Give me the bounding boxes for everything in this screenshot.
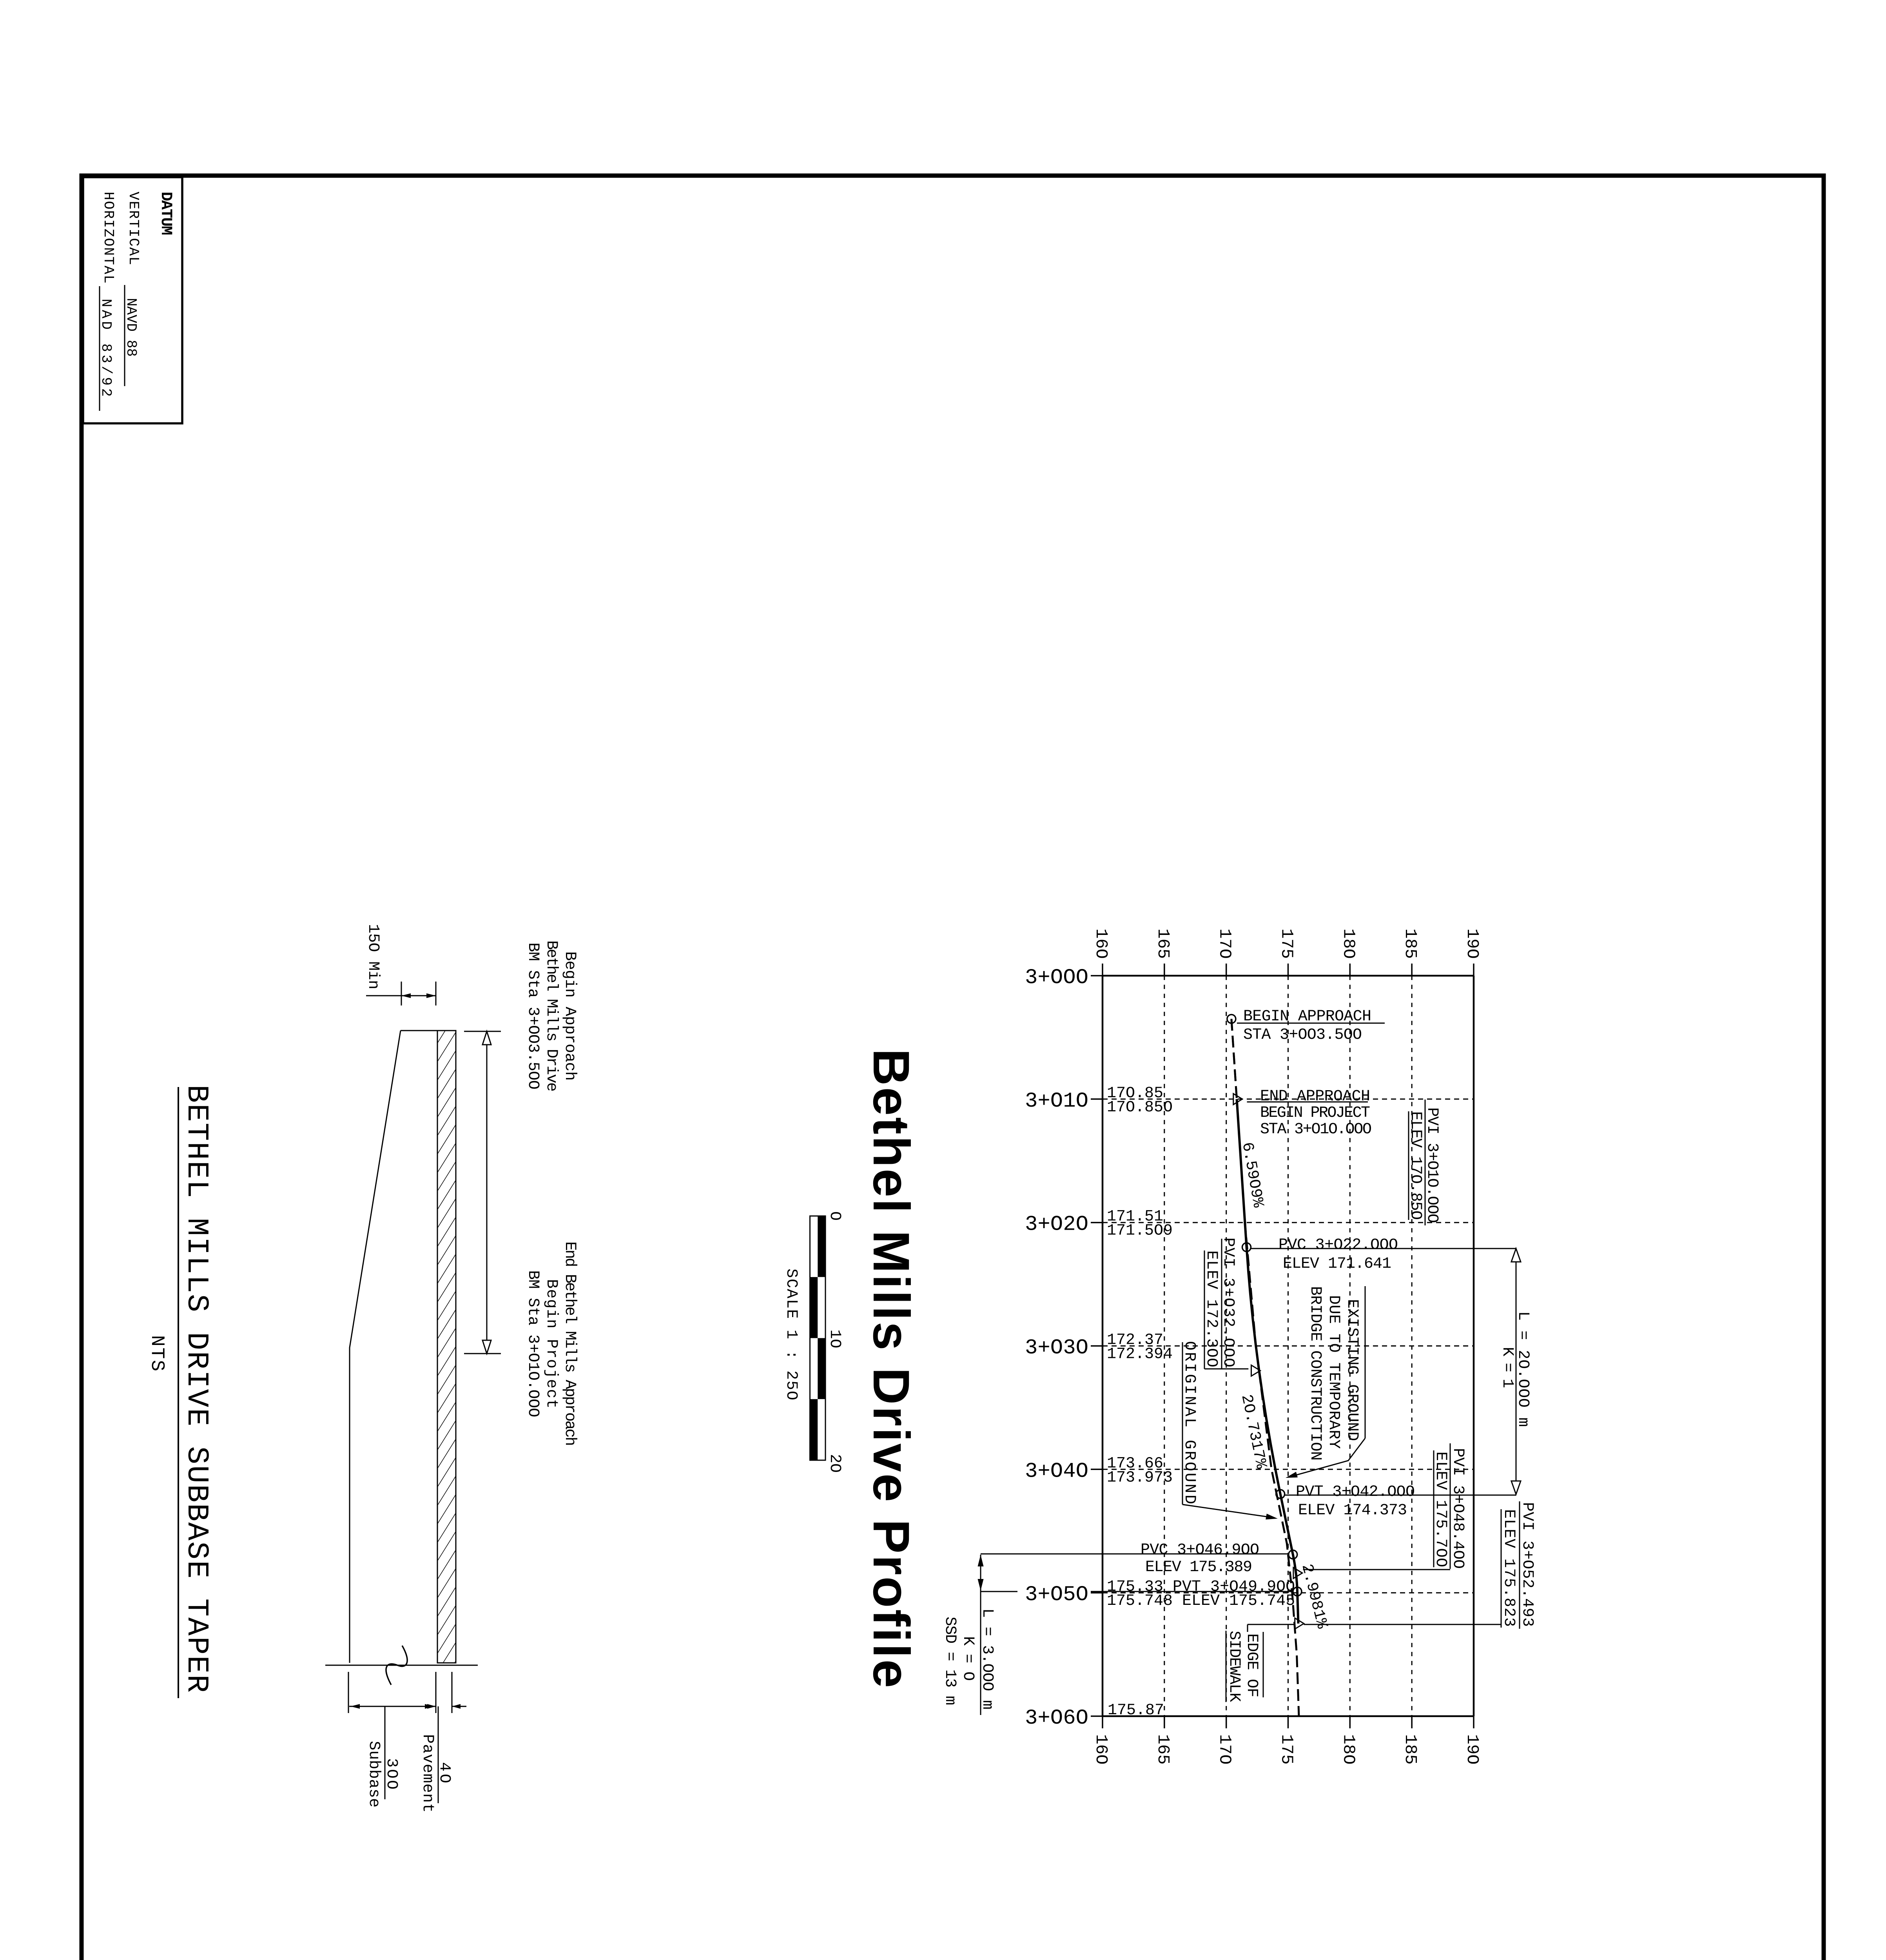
- svg-text:Bethel Mills Drive: Bethel Mills Drive: [542, 940, 560, 1092]
- svg-text:Begin Project: Begin Project: [542, 1279, 560, 1408]
- svg-text:3+O1O: 3+O1O: [1025, 1089, 1088, 1113]
- svg-text:3+O5O: 3+O5O: [1025, 1583, 1088, 1607]
- svg-text:BETHEL MILLS DRIVE SUBBASE TAP: BETHEL MILLS DRIVE SUBBASE TAPER: [179, 1085, 213, 1693]
- svg-text:3+OOO: 3+OOO: [1025, 966, 1088, 990]
- svg-text:BEGIN APPROACH: BEGIN APPROACH: [1243, 1008, 1371, 1025]
- svg-text:DUE TO TEMPORARY: DUE TO TEMPORARY: [1325, 1295, 1342, 1449]
- svg-text:EDGE OF: EDGE OF: [1243, 1633, 1260, 1697]
- svg-text:VERTICAL: VERTICAL: [125, 192, 141, 265]
- svg-text:19O: 19O: [1463, 1734, 1482, 1764]
- svg-text:Pavement: Pavement: [419, 1734, 436, 1813]
- svg-text:ELEV 175.7OO: ELEV 175.7OO: [1432, 1452, 1449, 1567]
- svg-text:BM Sta 3+O1O.OOO: BM Sta 3+O1O.OOO: [524, 1270, 542, 1417]
- svg-text:L = 3.OOO m: L = 3.OOO m: [978, 1608, 996, 1710]
- svg-text:BRIDGE CONSTRUCTION: BRIDGE CONSTRUCTION: [1306, 1286, 1324, 1461]
- svg-text:End Bethel Mills Approach: End Bethel Mills Approach: [561, 1241, 578, 1446]
- svg-text:16O: 16O: [1092, 929, 1111, 959]
- svg-text:185: 185: [1401, 929, 1420, 959]
- svg-text:BM Sta 3+OO3.5OO: BM Sta 3+OO3.5OO: [524, 943, 542, 1090]
- svg-text:PVT 3+O42.OOO: PVT 3+O42.OOO: [1296, 1483, 1415, 1501]
- svg-text:NAD 83/92: NAD 83/92: [98, 299, 114, 397]
- svg-text:STA 3+OO3.5OO: STA 3+OO3.5OO: [1243, 1026, 1362, 1044]
- svg-text:172.394: 172.394: [1107, 1346, 1173, 1363]
- svg-text:BEGIN PROJECT: BEGIN PROJECT: [1260, 1104, 1370, 1122]
- svg-text:PVI 3+O1O.OOO: PVI 3+O1O.OOO: [1423, 1107, 1441, 1223]
- svg-text:18O: 18O: [1339, 929, 1358, 959]
- svg-text:17O: 17O: [1215, 929, 1235, 959]
- svg-text:19O: 19O: [1463, 929, 1482, 959]
- svg-text:ELEV 175.823: ELEV 175.823: [1500, 1509, 1518, 1627]
- svg-text:Begin Approach: Begin Approach: [561, 951, 578, 1081]
- svg-text:1O: 1O: [826, 1329, 843, 1348]
- svg-text:175: 175: [1277, 929, 1297, 959]
- svg-text:2.9981%: 2.9981%: [1297, 1562, 1331, 1631]
- svg-text:ELEV 172.3OO: ELEV 172.3OO: [1202, 1250, 1220, 1367]
- svg-text:18O: 18O: [1339, 1734, 1358, 1764]
- svg-text:NTS: NTS: [146, 1335, 167, 1371]
- svg-text:165: 165: [1153, 1734, 1173, 1764]
- svg-text:DATUM: DATUM: [157, 192, 174, 235]
- svg-text:PVI 3+O48.4OO: PVI 3+O48.4OO: [1449, 1448, 1467, 1569]
- svg-text:SCALE 1 : 25O: SCALE 1 : 25O: [782, 1269, 800, 1400]
- svg-text:185: 185: [1401, 1734, 1420, 1764]
- svg-text:15O Min: 15O Min: [364, 924, 382, 989]
- svg-text:SIDEWALK: SIDEWALK: [1225, 1631, 1243, 1702]
- svg-text:17O.85O: 17O.85O: [1107, 1099, 1173, 1116]
- svg-text:3+O4O: 3+O4O: [1025, 1459, 1088, 1483]
- svg-text:PVC 3+O22.OOO: PVC 3+O22.OOO: [1278, 1236, 1398, 1254]
- svg-text:STA 3+O1O.OOO: STA 3+O1O.OOO: [1260, 1121, 1372, 1138]
- svg-text:17O: 17O: [1215, 1734, 1235, 1764]
- svg-text:ELEV 175.389: ELEV 175.389: [1145, 1559, 1252, 1576]
- svg-text:3+O2O: 3+O2O: [1025, 1213, 1088, 1237]
- svg-text:Subbase: Subbase: [365, 1741, 383, 1808]
- svg-text:175.87: 175.87: [1108, 1702, 1164, 1719]
- svg-text:175.748 ELEV 175.745: 175.748 ELEV 175.745: [1107, 1592, 1295, 1610]
- svg-text:K = O: K = O: [959, 1636, 977, 1681]
- svg-text:ELEV 171.641: ELEV 171.641: [1283, 1255, 1391, 1273]
- svg-text:L = 2O.OOO m: L = 2O.OOO m: [1514, 1311, 1532, 1427]
- svg-text:O: O: [826, 1211, 843, 1221]
- svg-text:3+O6O: 3+O6O: [1025, 1706, 1088, 1730]
- svg-text:PVC 3+O46.9OO: PVC 3+O46.9OO: [1141, 1541, 1259, 1559]
- svg-text:175: 175: [1277, 1734, 1297, 1764]
- svg-text:16O: 16O: [1092, 1734, 1111, 1764]
- svg-text:165: 165: [1153, 929, 1173, 959]
- svg-text:ELEV 17O.85O: ELEV 17O.85O: [1407, 1111, 1424, 1220]
- svg-text:ELEV 174.373: ELEV 174.373: [1298, 1502, 1407, 1519]
- svg-text:END APPROACH: END APPROACH: [1260, 1088, 1370, 1105]
- svg-text:2O: 2O: [826, 1454, 843, 1473]
- svg-text:171.5O9: 171.5O9: [1107, 1222, 1173, 1240]
- svg-text:K = 1: K = 1: [1498, 1347, 1516, 1388]
- svg-text:PVI 3+O52.493: PVI 3+O52.493: [1518, 1502, 1536, 1627]
- svg-text:3OO: 3OO: [383, 1758, 400, 1789]
- svg-text:173.973: 173.973: [1107, 1469, 1173, 1486]
- svg-text:ORIGINAL GROUND: ORIGINAL GROUND: [1181, 1341, 1198, 1504]
- svg-text:EXISTING GROUND: EXISTING GROUND: [1343, 1299, 1361, 1441]
- svg-text:Bethel Mills Drive Profile: Bethel Mills Drive Profile: [863, 1049, 920, 1688]
- svg-text:NAVD 88: NAVD 88: [123, 298, 139, 357]
- svg-text:SSD = 13 m: SSD = 13 m: [941, 1617, 959, 1705]
- svg-text:3+O3O: 3+O3O: [1025, 1336, 1088, 1360]
- svg-text:HORIZONTAL: HORIZONTAL: [100, 192, 116, 283]
